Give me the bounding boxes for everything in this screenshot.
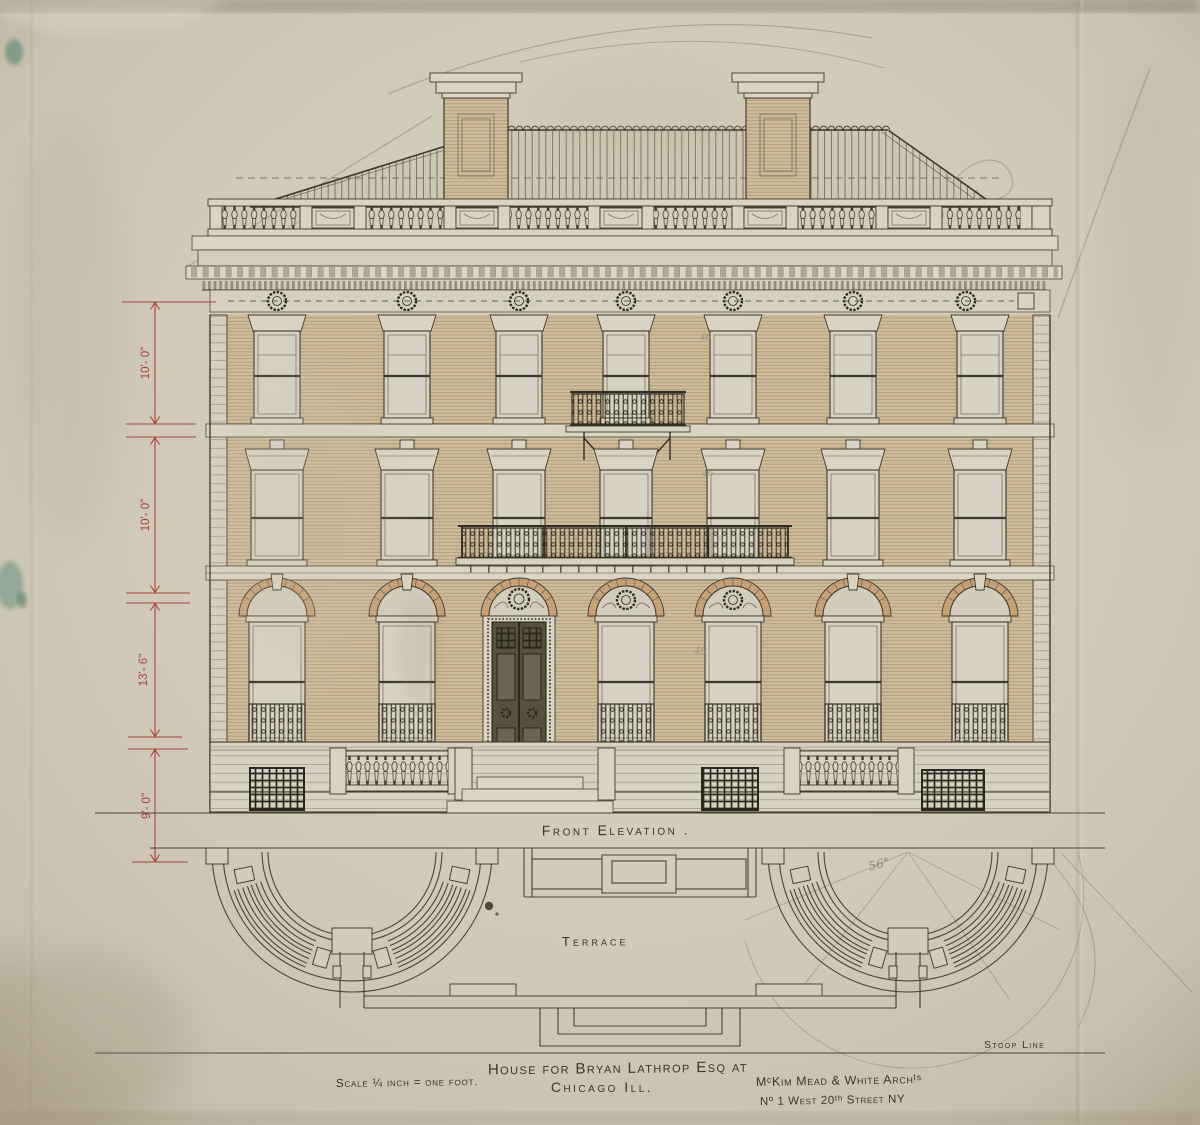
fold-crease [30,0,33,1125]
green-stain [5,39,23,65]
drawing-sheet: 10'- 0" 10'- 0" 13'- 6" 9'- 0" Front Ele… [0,0,1200,1125]
paper-texture [0,0,1200,1125]
architectural-drawing: 10'- 0" 10'- 0" 13'- 6" 9'- 0" Front Ele… [0,0,1200,1125]
fold-crease [1076,0,1079,1125]
